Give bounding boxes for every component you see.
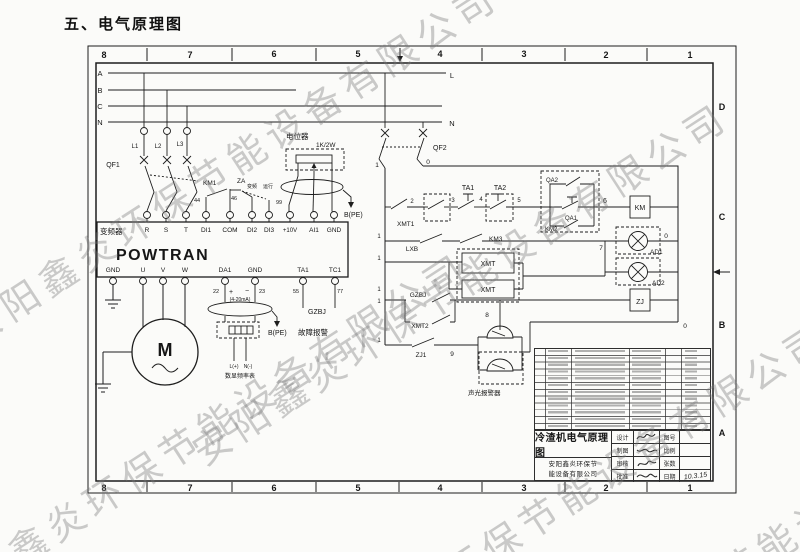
n99-label: 99 — [276, 200, 282, 206]
field-drawing-no: 图号 — [660, 431, 679, 443]
zone-bottom-3: 3 — [521, 483, 526, 493]
field-date: 日期 — [660, 470, 679, 482]
zone-bottom-5: 5 — [355, 483, 360, 493]
illegible-text — [632, 350, 661, 429]
node1-c2: 1 — [377, 287, 381, 293]
fault-alarm-label: 故障报警 — [298, 327, 328, 337]
terminal-da1: DA1 — [219, 267, 232, 274]
zone-top-4: 4 — [437, 49, 442, 59]
qf2-labels: QF2 1 0 — [375, 145, 447, 169]
node8: 8 — [485, 312, 489, 319]
illegible-text — [575, 350, 625, 429]
terminal-10v: +10V — [283, 228, 297, 234]
node1-d: 1 — [377, 299, 381, 305]
qf2-out1: 1 — [375, 162, 379, 169]
plus-label: + — [229, 289, 233, 296]
node3: 3 — [451, 198, 455, 204]
ad1-label: AD1 — [650, 249, 663, 256]
field-approve: 批准 — [612, 470, 633, 482]
qf2-label: QF2 — [433, 145, 447, 152]
ta1-label: TA1 — [462, 185, 474, 192]
motor-label: M — [158, 340, 173, 360]
signature-design — [634, 431, 659, 443]
rail-n-label: N — [97, 118, 102, 127]
qf1-label: QF1 — [106, 162, 120, 169]
rail-labels: A B C N L N — [97, 69, 454, 128]
zone-top-7: 7 — [187, 50, 192, 60]
zone-top-5: 5 — [355, 49, 360, 59]
km1-za-contacts — [206, 189, 269, 212]
meter-n-label: N(-) — [244, 364, 253, 370]
zone-right-b: B — [719, 320, 726, 330]
zone-bottom-8: 8 — [101, 483, 106, 493]
power-rails — [108, 73, 446, 122]
qf1-labels: L1 L2 L3 QF1 — [106, 142, 184, 169]
zone-top-3: 3 — [521, 49, 526, 59]
za-label: ZA — [237, 178, 246, 185]
terminal-b-gnd: GND — [106, 267, 121, 274]
n22-label: 22 — [213, 289, 219, 295]
rail-c-label: C — [97, 102, 103, 111]
xmt-box1-label: XMT — [481, 261, 497, 268]
qf1-breaker — [140, 73, 198, 211]
za-pos1-label: 变频 — [247, 183, 257, 190]
xmt2-label: XMT2 — [411, 323, 429, 330]
zone-top-2: 2 — [603, 50, 608, 60]
parts-table-gridline — [681, 349, 682, 429]
terminal-r: R — [145, 227, 150, 234]
terminal-ai1: AI1 — [309, 227, 319, 234]
qf2-breaker — [379, 73, 427, 168]
zone-right-d: D — [719, 102, 726, 112]
field-design: 设计 — [612, 431, 633, 443]
zone-bottom-2: 2 — [603, 483, 608, 493]
xmt-box2-label: XMT — [481, 287, 497, 294]
node9: 9 — [450, 351, 454, 358]
ad2-label: AD2 — [652, 280, 665, 287]
terminal-s: S — [164, 227, 169, 234]
terminal-gnd: GND — [327, 227, 342, 234]
terminal-w: W — [182, 267, 189, 274]
node0-bottom: 0 — [683, 323, 687, 330]
zone-top-6: 6 — [271, 49, 276, 59]
terminal-tc1: TC1 — [329, 267, 342, 274]
qf2-out0: 0 — [426, 159, 430, 166]
zone-bottom-7: 7 — [187, 483, 192, 493]
signature-draft — [634, 444, 659, 456]
node1-e: 1 — [377, 338, 381, 344]
zone-top-1: 1 — [687, 50, 692, 60]
field-check: 审核 — [612, 457, 633, 469]
zone-bottom-1: 1 — [687, 483, 692, 493]
n77-label: 77 — [337, 289, 343, 295]
inverter-brand: POWTRAN — [116, 247, 209, 264]
fuse-l2-label: L2 — [155, 144, 162, 150]
parts-table-gridline — [629, 349, 630, 429]
terminal-com: COM — [222, 227, 237, 234]
node7: 7 — [599, 245, 603, 252]
terminal-di1: DI1 — [201, 227, 212, 234]
line-l-label: L — [450, 71, 454, 80]
lxb-label: LXB — [406, 246, 418, 253]
fuse-l1-label: L1 — [132, 144, 139, 150]
field-sheets: 张数 — [660, 457, 679, 469]
zj1-label: ZJ1 — [416, 352, 427, 359]
terminal-gnd2: GND — [248, 267, 263, 274]
node2: 2 — [410, 199, 414, 205]
terminal-u: U — [141, 267, 146, 274]
parts-table-gridline — [665, 349, 666, 429]
page-title: 五、电气原理图 — [64, 13, 183, 34]
line-n-label: N — [449, 119, 454, 128]
pot-title-label: 电位器 — [286, 131, 309, 141]
signature-scribble — [636, 445, 658, 455]
ladder-rails — [385, 166, 678, 345]
node4: 4 — [479, 197, 483, 203]
zone-bottom-6: 6 — [271, 483, 276, 493]
ladder-row-zj — [385, 289, 678, 330]
qa1-label: QA1 — [565, 216, 578, 222]
inverter-label: 变频器 — [100, 226, 123, 236]
node1-labels: 1 1 1 1 1 — [377, 234, 381, 344]
parts-table-gridline — [545, 349, 546, 429]
node1-c1: 1 — [377, 256, 381, 262]
ta2-label: TA2 — [494, 185, 506, 192]
pot-value-label: 1K/2W — [316, 142, 336, 149]
rail-a-label: A — [97, 69, 102, 78]
km-coil-label: KM — [635, 205, 646, 212]
meter-l-label: L(+) — [229, 364, 238, 370]
illegible-text — [548, 350, 568, 429]
scanned-schematic-page: 五、电气原理图 8 7 — [0, 0, 800, 552]
signature-check — [634, 457, 659, 469]
ladder-row-km — [385, 171, 678, 232]
zone-top-8: 8 — [101, 50, 106, 60]
pe-label-2: B(PE) — [268, 330, 287, 337]
n46-label: 46 — [231, 196, 237, 202]
frequency-meter-branch — [208, 285, 335, 362]
minus-label: − — [245, 288, 249, 295]
km1-label: KM1 — [203, 180, 217, 187]
potentiometer — [281, 149, 354, 212]
field-scale: 比例 — [660, 444, 679, 456]
node5: 5 — [517, 198, 521, 204]
ladder-row-km-labels: XMT1 2 3 TA1 4 TA2 5 QA2 QA1 KM2 6 KM 0 — [397, 178, 668, 240]
meter-caption: 数显频率表 — [225, 372, 255, 380]
illegible-text — [685, 350, 697, 429]
za-pos2-label: 运行 — [263, 183, 273, 190]
zj-coil-label: ZJ — [636, 299, 644, 306]
node0-mid: 0 — [664, 233, 668, 240]
company-name: 安阳鑫炎环保节 能设备有限公司 — [535, 457, 611, 482]
km2-label: KM2 — [545, 227, 558, 233]
range-label: (4-20mA) — [230, 297, 251, 303]
signature-scribble — [636, 458, 658, 468]
n55-label: 55 — [293, 289, 299, 295]
title-block: 冷渣机电气原理图 安阳鑫炎环保节 能设备有限公司 设计 制图 审核 批准 图号 … — [534, 430, 711, 481]
signature-scribble — [636, 471, 658, 481]
parts-table-gridline — [571, 349, 572, 429]
gzbj-output-label: GZBJ — [308, 309, 326, 316]
node1-b: 1 — [377, 234, 381, 240]
terminal-v: V — [161, 267, 166, 274]
qa2-label: QA2 — [546, 178, 559, 184]
field-draft: 制图 — [612, 444, 633, 456]
zone-right-c: C — [719, 212, 726, 222]
node6: 6 — [603, 198, 607, 205]
gzbj-contact-label: GZBJ — [410, 292, 427, 299]
fuse-l3-label: L3 — [177, 142, 184, 148]
terminal-di2: DI2 — [247, 227, 258, 234]
drawing-title: 冷渣机电气原理图 — [535, 431, 611, 457]
motor-branch — [95, 285, 198, 393]
parts-list-table — [534, 348, 711, 430]
signature-approve — [634, 470, 659, 482]
terminal-di3: DI3 — [264, 227, 275, 234]
horn-caption: 声光报警器 — [468, 388, 501, 397]
terminal-t: T — [184, 227, 188, 234]
ladder-row-ad1-labels: LXB KM3 7 AD1 — [406, 236, 663, 256]
pe-label-1: B(PE) — [344, 212, 363, 219]
company-line2: 能设备有限公司 — [549, 470, 598, 479]
zone-right-a: A — [719, 428, 726, 438]
ladder-row-zj-labels: GZBJ XMT2 8 ZJ — [410, 292, 644, 330]
km3-label: KM3 — [489, 236, 503, 243]
rail-b-label: B — [97, 86, 102, 95]
xmt1-label: XMT1 — [397, 221, 415, 228]
company-line1: 安阳鑫炎环保节 — [549, 460, 598, 469]
n44-label: 44 — [194, 198, 200, 204]
terminal-ta1: TA1 — [297, 267, 309, 274]
signature-scribble — [636, 432, 658, 442]
n23-label: 23 — [259, 289, 265, 295]
zone-bottom-4: 4 — [437, 483, 442, 493]
